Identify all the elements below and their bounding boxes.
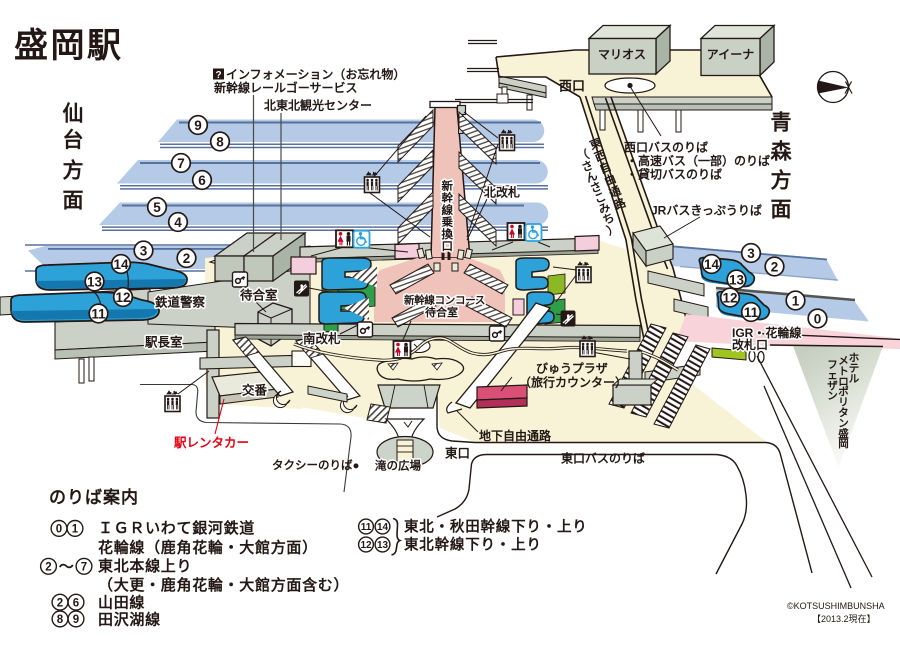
svg-text:6: 6 <box>73 597 79 609</box>
svg-text:西口バスのりば: 西口バスのりば <box>624 140 708 155</box>
svg-text:7: 7 <box>81 562 87 574</box>
svg-text:14: 14 <box>704 257 720 272</box>
svg-text:2: 2 <box>57 597 63 609</box>
svg-text:面: 面 <box>63 190 84 213</box>
svg-text:交番: 交番 <box>242 383 268 398</box>
svg-text:0: 0 <box>56 524 62 536</box>
svg-text:新: 新 <box>442 179 454 193</box>
svg-text:8: 8 <box>57 614 64 626</box>
svg-text:（旅行カウンター）: （旅行カウンター） <box>519 375 627 390</box>
svg-text:方: 方 <box>771 169 792 193</box>
svg-text:アイーナ: アイーナ <box>707 48 754 62</box>
svg-text:4: 4 <box>174 215 182 230</box>
svg-text:・高速バス（一部）のりば: ・高速バス（一部）のりば <box>626 153 770 168</box>
svg-text:幹: 幹 <box>442 191 454 205</box>
svg-text:駅レンタカー: 駅レンタカー <box>173 435 249 450</box>
svg-text:面: 面 <box>771 199 792 222</box>
svg-text:改札口: 改札口 <box>732 337 768 352</box>
svg-text:鉄道警察: 鉄道警察 <box>155 295 206 310</box>
svg-text:駅長室: 駅長室 <box>144 335 183 350</box>
svg-text:1: 1 <box>792 293 800 308</box>
svg-text:滝の広場: 滝の広場 <box>375 459 421 473</box>
svg-text:13: 13 <box>377 540 389 551</box>
svg-text:7: 7 <box>177 156 185 171</box>
svg-text:地下自由通路: 地下自由通路 <box>479 428 552 443</box>
svg-text:北改札: 北改札 <box>484 185 520 200</box>
svg-text:盛岡駅: 盛岡駅 <box>14 27 124 65</box>
svg-text:ル: ル <box>849 373 860 385</box>
svg-text:2: 2 <box>771 259 779 274</box>
svg-text:・貸切バスのりば: ・貸切バスのりば <box>626 167 722 182</box>
svg-text:新幹線レールゴーサービス: 新幹線レールゴーサービス <box>214 80 358 95</box>
svg-text:新幹線コンコース: 新幹線コンコース <box>404 294 485 307</box>
svg-text:台: 台 <box>63 128 84 152</box>
svg-text:北東北観光センター: 北東北観光センター <box>264 98 372 113</box>
svg-text:待合室: 待合室 <box>424 305 458 319</box>
svg-text:岡: 岡 <box>838 438 849 450</box>
svg-text:3: 3 <box>747 246 755 261</box>
svg-text:2: 2 <box>45 562 51 574</box>
svg-text:14: 14 <box>377 522 389 533</box>
svg-text:方: 方 <box>63 159 84 183</box>
svg-text:11: 11 <box>744 305 759 320</box>
svg-text:14: 14 <box>113 257 129 272</box>
svg-text:東北幹線下り・上り: 東北幹線下り・上り <box>404 536 542 554</box>
svg-text:6: 6 <box>198 173 206 188</box>
svg-text:仙: 仙 <box>63 102 84 126</box>
svg-text:13: 13 <box>87 274 103 289</box>
svg-text:東北・秋田幹線下り・上り: 東北・秋田幹線下り・上り <box>404 518 588 536</box>
svg-text:5: 5 <box>153 200 161 215</box>
svg-text:乗: 乗 <box>441 215 454 229</box>
svg-text:タクシーのりば●: タクシーのりば● <box>272 458 359 472</box>
svg-text:JRバスきっぷうりば: JRバスきっぷうりば <box>651 203 762 218</box>
svg-text:3: 3 <box>140 243 148 258</box>
svg-text:9: 9 <box>194 118 202 133</box>
svg-text:11: 11 <box>91 306 106 321</box>
svg-text:山田線: 山田線 <box>98 594 145 612</box>
svg-text:マリオス: マリオス <box>598 48 646 62</box>
svg-text:【2013.2現在】: 【2013.2現在】 <box>812 613 876 624</box>
svg-text:?: ? <box>216 70 222 81</box>
svg-text:南改札: 南改札 <box>303 331 341 346</box>
svg-text:待合室: 待合室 <box>240 288 278 303</box>
svg-text:12: 12 <box>360 540 372 551</box>
svg-text:12: 12 <box>722 290 737 305</box>
svg-text:0: 0 <box>814 311 822 326</box>
svg-text:ン: ン <box>827 390 838 402</box>
svg-text:12: 12 <box>115 290 130 305</box>
svg-text:©KOTSUSHIMBUNSHA: ©KOTSUSHIMBUNSHA <box>787 601 885 611</box>
svg-text:青: 青 <box>771 112 792 135</box>
svg-text:ＩＧＲいわて銀河鉄道: ＩＧＲいわて銀河鉄道 <box>98 519 255 537</box>
svg-text:東口: 東口 <box>445 446 470 461</box>
svg-text:びゅうプラザ: びゅうプラザ <box>536 361 608 376</box>
svg-text:9: 9 <box>73 614 79 626</box>
svg-text:11: 11 <box>361 522 372 533</box>
svg-text:東口バスのりば: 東口バスのりば <box>561 451 645 466</box>
svg-text:線: 線 <box>442 203 454 217</box>
svg-text:東北本線上り: 東北本線上り <box>98 557 192 575</box>
svg-text:田沢湖線: 田沢湖線 <box>98 611 161 629</box>
svg-text:口: 口 <box>442 240 454 253</box>
svg-text:インフォメーション（お忘れ物）: インフォメーション（お忘れ物） <box>226 67 405 82</box>
svg-text:換: 換 <box>442 227 454 241</box>
svg-text:（大更・鹿角花輪・大館方面含む）: （大更・鹿角花輪・大館方面含む） <box>98 576 349 594</box>
svg-text:1: 1 <box>72 524 79 536</box>
svg-text:花輪線（鹿角花輪・大館方面）: 花輪線（鹿角花輪・大館方面） <box>98 539 318 557</box>
svg-text:～: ～ <box>59 558 74 575</box>
svg-text:のりば案内: のりば案内 <box>49 487 139 507</box>
svg-text:13: 13 <box>729 272 745 287</box>
svg-text:西口: 西口 <box>559 79 585 94</box>
svg-text:2: 2 <box>183 251 191 266</box>
svg-text:8: 8 <box>216 134 224 149</box>
svg-text:森: 森 <box>771 141 793 164</box>
